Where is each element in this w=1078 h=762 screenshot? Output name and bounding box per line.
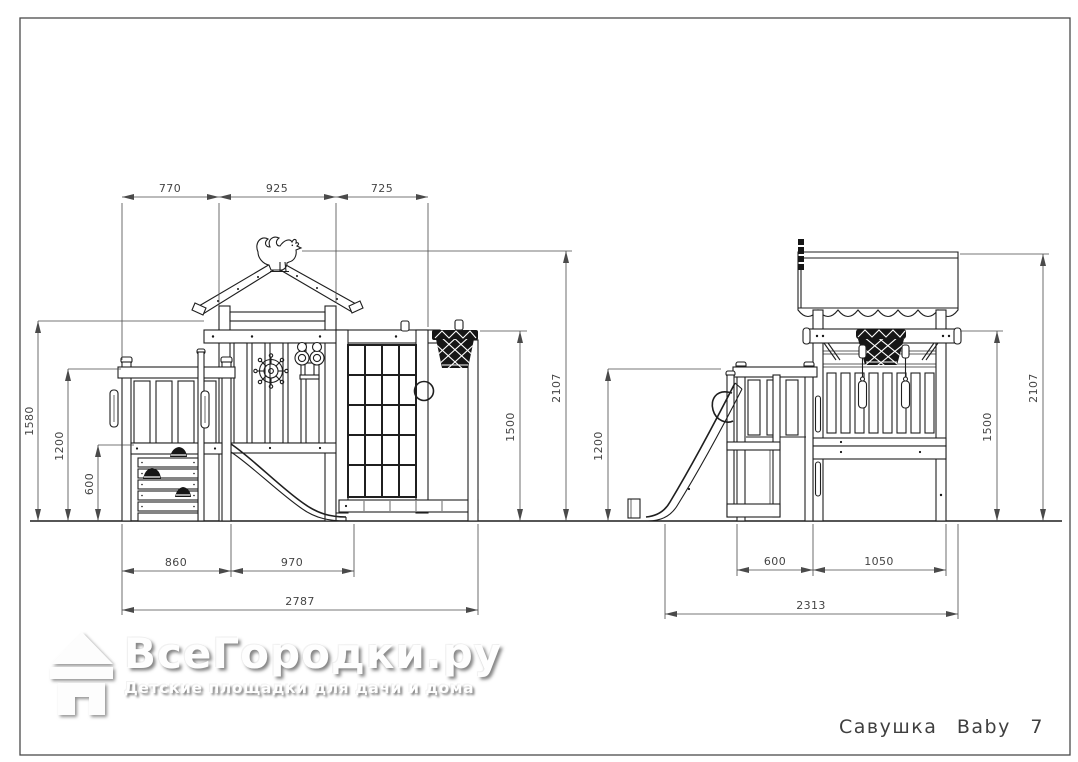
logo-text: ВсеГородки.ру Детские площадки для дачи … bbox=[124, 630, 502, 697]
rooster-weathervane bbox=[257, 237, 301, 271]
logo-tagline: Детские площадки для дачи и дома bbox=[124, 679, 502, 697]
dim-725: 725 bbox=[371, 182, 393, 195]
dim-1500-side: 1500 bbox=[981, 412, 994, 442]
dim-2313: 2313 bbox=[796, 599, 826, 612]
main-beam bbox=[204, 321, 440, 343]
dim-2107-side: 2107 bbox=[1027, 373, 1040, 403]
dim-2107-front: 2107 bbox=[550, 373, 563, 403]
hoop-post bbox=[468, 340, 478, 521]
dim-925: 925 bbox=[266, 182, 288, 195]
dim-1200-side: 1200 bbox=[592, 431, 605, 461]
side-view bbox=[628, 239, 961, 521]
front-view bbox=[110, 237, 480, 521]
dim-600-side: 600 bbox=[764, 555, 786, 568]
dim-770: 770 bbox=[159, 182, 181, 195]
dim-1500-front: 1500 bbox=[504, 412, 517, 442]
logo: ВсеГородки.ру Детские площадки для дачи … bbox=[50, 630, 502, 716]
dim-860: 860 bbox=[165, 556, 187, 569]
stair-pole bbox=[198, 352, 204, 521]
dim-1200-front: 1200 bbox=[53, 431, 66, 461]
dim-2787: 2787 bbox=[285, 595, 315, 608]
canopy-roof bbox=[798, 239, 958, 317]
dim-970: 970 bbox=[281, 556, 303, 569]
basketball-hoop bbox=[430, 320, 480, 521]
logo-brand: ВсеГородки.ру bbox=[124, 630, 502, 678]
dim-1050: 1050 bbox=[864, 555, 894, 568]
drawing-title: Савушка Baby 7 bbox=[839, 716, 1044, 738]
slide-side bbox=[628, 383, 742, 521]
slide-anchor bbox=[628, 499, 640, 518]
drawing-sheet: 770 925 725 1580 1200 600 1500 2107 860 … bbox=[0, 0, 1078, 762]
side-railing bbox=[813, 351, 946, 459]
dim-600-front: 600 bbox=[83, 473, 96, 495]
dim-1580: 1580 bbox=[23, 406, 36, 436]
climbing-stairs bbox=[138, 447, 198, 521]
house-icon bbox=[50, 630, 114, 716]
